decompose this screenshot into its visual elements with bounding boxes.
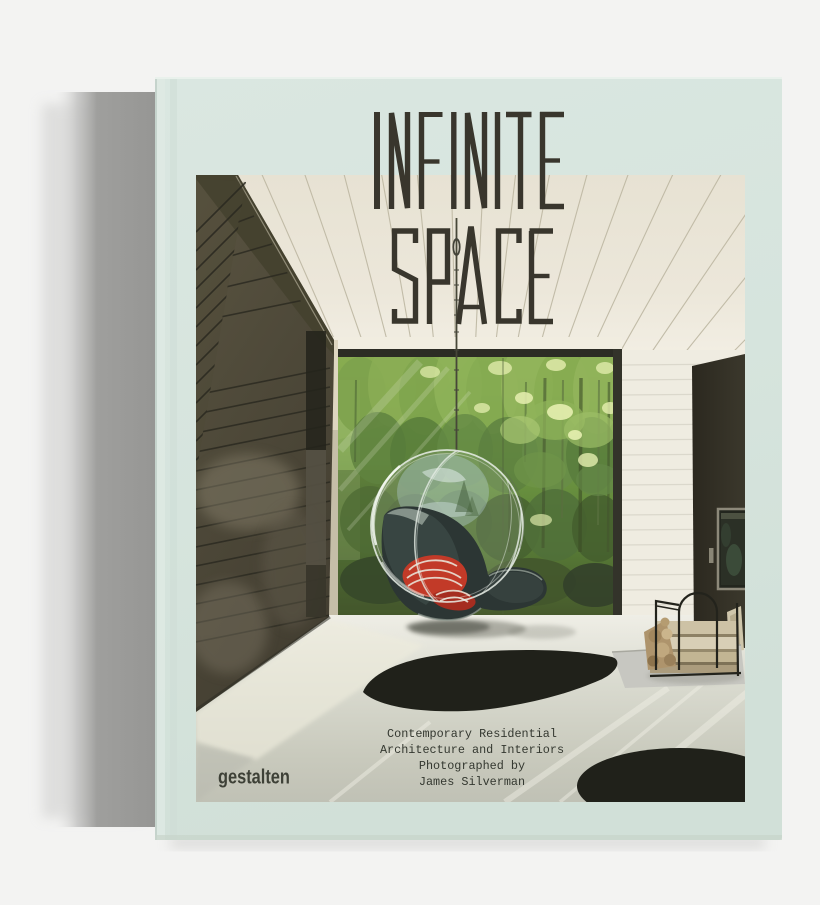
svg-text:Photographed by: Photographed by: [419, 759, 525, 773]
svg-text:gestalten: gestalten: [218, 765, 290, 788]
svg-text:Contemporary Residential: Contemporary Residential: [387, 727, 557, 741]
svg-text:James Silverman: James Silverman: [419, 775, 525, 789]
svg-text:Architecture and Interiors: Architecture and Interiors: [380, 743, 564, 757]
